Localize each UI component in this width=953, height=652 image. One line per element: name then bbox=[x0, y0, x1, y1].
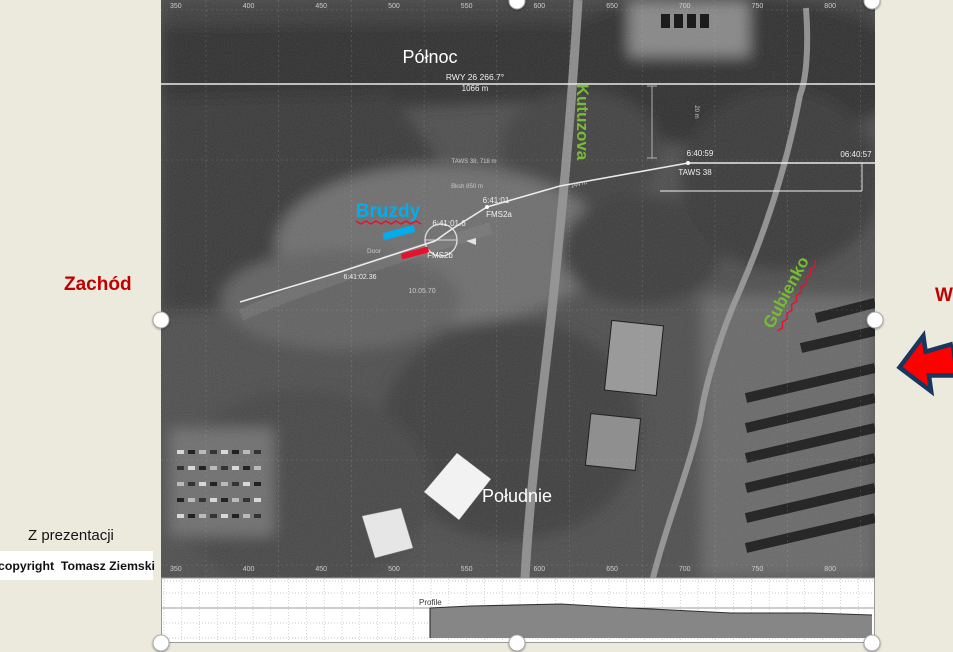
parked-car bbox=[177, 498, 184, 502]
selection-handle-bottom-center[interactable] bbox=[509, 635, 526, 652]
runway-heading-text: RWY 26 266.7° bbox=[446, 72, 504, 82]
kutuzova-street-label[interactable]: Kutuzova bbox=[573, 84, 592, 161]
taws-label-text: TAWS 38 bbox=[678, 168, 712, 177]
ruler-value: 800 bbox=[824, 566, 836, 573]
ruler-value: 750 bbox=[752, 566, 764, 573]
parked-car bbox=[243, 482, 250, 486]
ruler-value: 350 bbox=[170, 3, 182, 10]
ruler-value: 500 bbox=[388, 566, 400, 573]
bank-dist-text: Bksh 850 m bbox=[451, 184, 483, 190]
warehouse-center-1 bbox=[604, 320, 663, 395]
west-label[interactable]: Zachód bbox=[64, 274, 132, 296]
parked-car bbox=[199, 450, 206, 454]
parked-car bbox=[210, 450, 217, 454]
south-label[interactable]: Południe bbox=[482, 486, 552, 506]
parked-car bbox=[221, 450, 228, 454]
parked-car bbox=[199, 466, 206, 470]
red-arrow-svg bbox=[887, 312, 953, 412]
door-text: Door bbox=[367, 248, 382, 255]
parked-car bbox=[188, 482, 195, 486]
waypoint-dot-1 bbox=[485, 205, 489, 209]
parked-car bbox=[243, 498, 250, 502]
ruler-value: 700 bbox=[679, 3, 691, 10]
ruler-value: 450 bbox=[315, 3, 327, 10]
parked-car bbox=[188, 466, 195, 470]
copyright-text: copyright Tomasz Ziemski bbox=[0, 559, 155, 573]
compound-vehicle bbox=[700, 14, 709, 28]
parked-car bbox=[210, 514, 217, 518]
parked-car bbox=[199, 514, 206, 518]
ruler-value: 550 bbox=[461, 3, 473, 10]
taws-alt-text: TAWS 38, 718 m bbox=[451, 159, 496, 165]
selection-handle-middle-right[interactable] bbox=[867, 312, 884, 329]
fms2a-text: FMS2a bbox=[486, 210, 512, 219]
parked-car bbox=[177, 482, 184, 486]
left-arrow-icon bbox=[896, 332, 953, 395]
parked-car bbox=[188, 514, 195, 518]
map-svg: 350400450500550600650700750800 350400450… bbox=[161, 0, 875, 643]
ruler-value: 750 bbox=[752, 3, 764, 10]
compound-vehicle bbox=[661, 14, 670, 28]
time-right-text: 06:40:57 bbox=[840, 150, 872, 159]
north-label[interactable]: Północ bbox=[402, 47, 457, 67]
selection-handle-middle-left[interactable] bbox=[153, 312, 170, 329]
parked-car bbox=[232, 498, 239, 502]
parked-car bbox=[210, 466, 217, 470]
parked-car bbox=[221, 514, 228, 518]
parked-car bbox=[210, 498, 217, 502]
parked-car bbox=[177, 466, 184, 470]
parked-car bbox=[243, 450, 250, 454]
selection-handle-bottom-left[interactable] bbox=[153, 635, 170, 652]
parked-car bbox=[254, 482, 261, 486]
parked-car bbox=[243, 514, 250, 518]
ruler-value: 500 bbox=[388, 3, 400, 10]
ruler-value: 400 bbox=[243, 3, 255, 10]
bruzdy-label[interactable]: Bruzdy bbox=[356, 201, 421, 222]
ruler-value: 600 bbox=[534, 3, 546, 10]
kutuzova-text: Kutuzova bbox=[573, 84, 592, 161]
parked-car bbox=[221, 498, 228, 502]
parked-car bbox=[210, 482, 217, 486]
warehouse-center-2 bbox=[585, 414, 640, 471]
fms2b-text: FMS2b bbox=[427, 251, 453, 260]
profile-label: Profile bbox=[419, 598, 442, 607]
parked-car bbox=[232, 514, 239, 518]
parked-car bbox=[254, 450, 261, 454]
parked-car bbox=[199, 482, 206, 486]
waypoint-dot-2 bbox=[686, 161, 690, 165]
source-note[interactable]: Z prezentacji bbox=[28, 527, 114, 544]
ruler-value: 550 bbox=[461, 566, 473, 573]
ruler-value: 400 bbox=[243, 566, 255, 573]
time-2-text: 6:41:01 bbox=[483, 196, 510, 205]
east-label-partial[interactable]: W bbox=[935, 285, 953, 307]
profile-chart: Profile bbox=[161, 578, 875, 643]
compound-vehicle bbox=[674, 14, 683, 28]
parked-car bbox=[232, 450, 239, 454]
compound-vehicle bbox=[687, 14, 696, 28]
parked-car bbox=[232, 482, 239, 486]
ruler-value: 650 bbox=[606, 3, 618, 10]
parked-car bbox=[199, 498, 206, 502]
ruler-value: 350 bbox=[170, 566, 182, 573]
ruler-value: 800 bbox=[824, 3, 836, 10]
parked-car bbox=[254, 514, 261, 518]
dist-20-text: 20 m bbox=[693, 105, 699, 118]
slide: { "slide": { "background_color": "#ECE9D… bbox=[0, 0, 953, 646]
map-picture[interactable]: 350400450500550600650700750800 350400450… bbox=[161, 0, 875, 643]
parked-car bbox=[254, 466, 261, 470]
date-text: 10.05.70 bbox=[408, 288, 435, 295]
runway-length-text: 1066 m bbox=[462, 84, 489, 93]
red-arrow-shape[interactable] bbox=[887, 312, 953, 412]
parked-car bbox=[232, 466, 239, 470]
parked-car bbox=[221, 466, 228, 470]
ruler-value: 600 bbox=[534, 566, 546, 573]
ruler-value: 700 bbox=[679, 566, 691, 573]
parked-car bbox=[177, 514, 184, 518]
time-1-text: 6:40:59 bbox=[687, 149, 714, 158]
parked-car bbox=[243, 466, 250, 470]
ruler-value: 450 bbox=[315, 566, 327, 573]
parked-car bbox=[188, 498, 195, 502]
parked-car bbox=[221, 482, 228, 486]
copyright-box[interactable]: copyright Tomasz Ziemski bbox=[0, 551, 153, 580]
parked-car bbox=[177, 450, 184, 454]
parked-car bbox=[254, 498, 261, 502]
ruler-value: 650 bbox=[606, 566, 618, 573]
time-3-text: 6:41:01.6 bbox=[432, 219, 466, 228]
parked-car bbox=[188, 450, 195, 454]
selection-handle-bottom-right[interactable] bbox=[864, 635, 881, 652]
time-4-text: 6:41:02.36 bbox=[343, 274, 376, 281]
